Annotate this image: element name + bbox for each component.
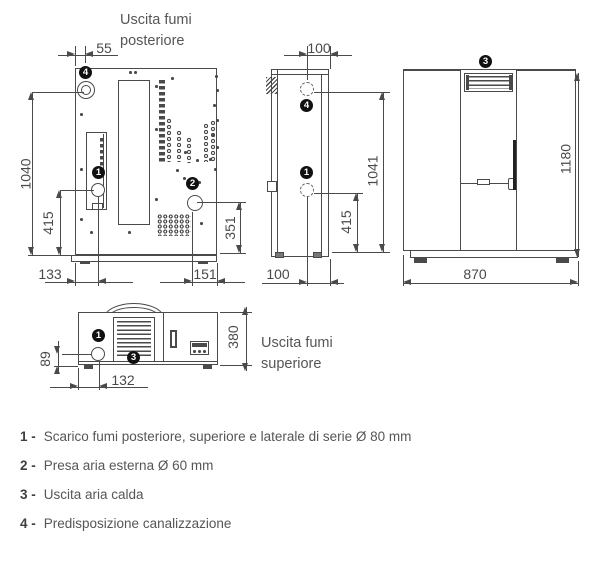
marker-4-side: 4 [300, 99, 313, 112]
front-foot-left [414, 258, 427, 263]
grille-end-cap [509, 75, 512, 90]
rear-inner-panel [118, 80, 150, 225]
top-foot-right [203, 365, 212, 369]
dim-arrow [242, 307, 248, 315]
dim-ext-line [98, 197, 99, 286]
dim-arrow [70, 383, 78, 389]
rear-hole-column-3 [186, 137, 192, 163]
rear-screw-dot [155, 198, 158, 201]
marker-3-top: 3 [127, 351, 140, 364]
front-base-plate [410, 250, 578, 258]
side-foot-right [313, 252, 322, 258]
dim-line [383, 92, 384, 252]
legend-item-1: 1 - Scarico fumi posteriore, superiore e… [20, 429, 585, 444]
top-foot-left [84, 365, 93, 369]
rear-screw-dot [171, 77, 174, 80]
canalization-hole-dashed-circle [300, 82, 314, 96]
dim-ext-line [62, 354, 91, 355]
dim-front-height: 1180 [558, 137, 574, 182]
rear-foot-left [80, 261, 90, 264]
legend-item-3: 3 - Uscita aria calda [20, 487, 585, 502]
rear-screw-dot [128, 231, 131, 234]
rear-screw-dot [216, 146, 219, 149]
top-divider-line [163, 312, 164, 362]
top-view-title: Uscita fumi superiore [261, 333, 386, 374]
rear-screw-dot [213, 104, 216, 107]
rear-screw-dot [90, 231, 93, 234]
marker-1-top: 1 [92, 329, 105, 342]
dim-ext-line [75, 46, 76, 66]
side-latch-detail [267, 181, 277, 192]
dim-arrow [54, 346, 60, 354]
dim-arrow [28, 247, 34, 255]
marker-2-rear: 2 [186, 177, 199, 190]
marker-1-rear: 1 [92, 166, 105, 179]
legend-number: 2 - [20, 458, 40, 473]
rear-screw-dot [155, 128, 158, 131]
legend-text: Uscita aria calda [44, 487, 144, 502]
rear-screw-dot [216, 89, 219, 92]
rear-perforation-grid [157, 214, 191, 236]
dim-ext-line [220, 253, 246, 254]
top-title-line2: superiore [261, 354, 386, 375]
dim-ext-line [60, 190, 94, 191]
dim-line [160, 282, 245, 283]
dim-line [403, 283, 578, 284]
dim-top-flue-offset-x: 132 [103, 372, 143, 388]
technical-drawing: Uscita fumi posteriore [0, 0, 600, 586]
dim-rear-flue-offset: 55 [90, 40, 118, 56]
top-slot-detail [170, 330, 177, 348]
dim-arrow [67, 51, 75, 57]
legend-item-2: 2 - Presa aria esterna Ø 60 mm [20, 458, 585, 473]
canalization-outlet-inner-circle [81, 85, 91, 95]
dim-ext-line [332, 252, 390, 253]
door-hinge-strip [513, 140, 516, 190]
dim-arrow [574, 73, 580, 81]
rear-screw-dot [214, 168, 217, 171]
dim-rear-air-height: 351 [222, 211, 238, 245]
rear-hole-column-4 [203, 123, 209, 162]
rear-hole-column-5 [210, 120, 216, 162]
dim-arrow [379, 92, 385, 100]
legend-text: Predisposizione canalizzazione [44, 516, 232, 531]
legend-number: 4 - [20, 516, 40, 531]
hot-air-grille-slats [467, 76, 510, 89]
dim-top-flue-offset-y: 89 [37, 346, 53, 372]
dim-top-depth: 380 [225, 319, 241, 355]
rear-base-plate [71, 255, 217, 262]
rear-screw-dot [212, 134, 215, 137]
dim-line [246, 307, 247, 371]
front-right-edge [575, 69, 576, 250]
legend-number: 1 - [20, 429, 40, 444]
rear-channel-slots [100, 138, 103, 166]
dim-front-width: 870 [455, 266, 495, 282]
rear-title-line1: Uscita fumi [120, 10, 235, 31]
dim-arrow [236, 202, 242, 210]
dim-arrow [236, 245, 242, 253]
dim-arrow [28, 92, 34, 100]
dim-arrow [98, 278, 106, 284]
legend-item-4: 4 - Predisposizione canalizzazione [20, 516, 585, 531]
dim-arrow [242, 363, 248, 371]
dim-rear-base-left: 133 [33, 266, 67, 282]
dim-side-height: 1041 [365, 149, 381, 194]
rear-foot-right [198, 261, 208, 264]
dim-ext-line [578, 261, 579, 286]
dim-arrow [56, 247, 62, 255]
rear-view-title: Uscita fumi posteriore [120, 10, 235, 51]
rear-screw-dot [80, 113, 83, 116]
legend-text: Presa aria esterna Ø 60 mm [44, 458, 214, 473]
dim-rear-flue-height: 415 [40, 206, 56, 240]
top-smoke-outlet-circle [91, 347, 105, 361]
top-control-panel-strip [192, 343, 207, 347]
top-control-dot [198, 350, 201, 353]
rear-screw-dot [196, 159, 199, 162]
side-foot-left [275, 252, 284, 258]
rear-title-line2: posteriore [120, 31, 235, 52]
rear-hole-column-2 [176, 130, 182, 162]
rear-screw-dot [200, 222, 203, 225]
marker-4-rear: 4 [79, 66, 92, 79]
dim-side-depth-top: 100 [303, 40, 335, 56]
rear-screw-dot [134, 71, 137, 74]
rear-screw-dot [184, 151, 187, 154]
rear-vent-slot-column [159, 80, 165, 164]
dim-arrow [299, 279, 307, 285]
dim-line [60, 190, 61, 255]
front-foot-right [556, 258, 569, 263]
dim-arrow [570, 279, 578, 285]
rear-screw-dot [215, 75, 218, 78]
dim-line [578, 73, 579, 257]
dim-rear-base-right: 151 [188, 266, 222, 282]
dim-arrow [54, 366, 60, 374]
side-panel-line [277, 69, 278, 257]
top-title-line1: Uscita fumi [261, 333, 386, 354]
rear-screw-dot [80, 218, 83, 221]
dim-arrow [67, 278, 75, 284]
rear-screw-dot [183, 177, 186, 180]
front-column-outline [460, 69, 517, 255]
rear-screw-dot [129, 71, 132, 74]
rear-screw-dot [209, 158, 212, 161]
rear-screw-dot [216, 119, 219, 122]
top-control-dot [193, 350, 196, 353]
side-handle-hatch [266, 77, 277, 94]
dim-arrow [330, 279, 338, 285]
dim-arrow [353, 244, 359, 252]
rear-screw-dot [80, 168, 83, 171]
dim-ext-line [28, 255, 72, 256]
side-panel-line [321, 74, 322, 257]
dim-arrow [56, 190, 62, 198]
top-control-dot [203, 350, 206, 353]
dim-rear-height: 1040 [18, 152, 34, 197]
air-intake-circle [187, 195, 203, 211]
legend-number: 3 - [20, 487, 40, 502]
dim-ext-line [32, 92, 84, 93]
marker-3-front: 3 [479, 55, 492, 68]
dim-arrow [379, 244, 385, 252]
dim-arrow [353, 193, 359, 201]
dim-arrow [403, 279, 411, 285]
rear-screw-dot [176, 169, 179, 172]
marker-1-side: 1 [300, 166, 313, 179]
dim-ext-line [307, 197, 308, 286]
smoke-hole-dashed-circle [300, 183, 314, 197]
dim-side-flue-height: 415 [338, 205, 354, 239]
legend-text: Scarico fumi posteriore, superiore e lat… [44, 429, 412, 444]
grille-end-cap [466, 75, 469, 90]
dim-arrow [574, 249, 580, 257]
rear-screw-dot [155, 85, 158, 88]
front-logo-plate [477, 179, 490, 185]
dim-side-depth-bottom: 100 [261, 266, 295, 282]
rear-hole-column-1 [166, 118, 172, 162]
front-left-edge [403, 69, 404, 250]
dim-line [45, 282, 133, 283]
